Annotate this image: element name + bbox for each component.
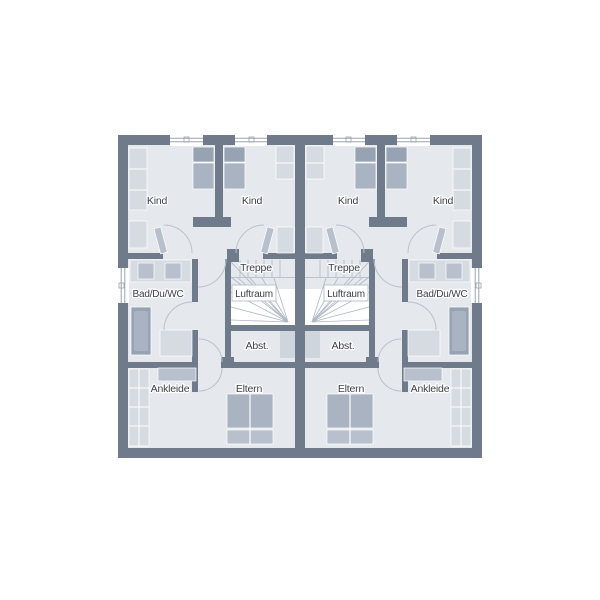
- room-label-parents-left: Eltern: [236, 383, 263, 395]
- room-label-dressing-right: Ankleide: [411, 383, 450, 395]
- room-label-bathroom-left: Bad/Du/WC: [133, 289, 184, 300]
- double-bed: [227, 394, 273, 444]
- bed: [193, 147, 214, 189]
- room-label-bathroom-right: Bad/Du/WC: [417, 289, 468, 300]
- room-label-stairs-left: Treppe: [240, 262, 272, 274]
- room-label-parents-right: Eltern: [338, 383, 365, 395]
- wardrobe: [129, 148, 147, 210]
- room-label-dressing-left: Ankleide: [151, 383, 190, 395]
- closet-shelves: [129, 369, 149, 446]
- floor-plan: Kind Kind Treppe Luftraum Bad/Du/WC Abst…: [0, 0, 600, 600]
- room-label-child-1-left: Kind: [147, 195, 168, 207]
- sink: [165, 263, 181, 279]
- desk: [129, 221, 147, 248]
- dresser: [158, 368, 196, 381]
- shaft: [280, 331, 295, 358]
- room-label-airspace-right: Luftraum: [327, 289, 365, 300]
- room-label-child-1-right: Kind: [338, 195, 359, 207]
- party-wall: [295, 135, 305, 458]
- bed: [224, 147, 245, 189]
- desk: [277, 227, 294, 253]
- room-label-child-2-right: Kind: [433, 195, 454, 207]
- window-icon: [170, 134, 203, 146]
- window-icon: [117, 268, 129, 303]
- bathtub: [131, 307, 151, 355]
- room-label-child-2-left: Kind: [242, 195, 263, 207]
- room-label-airspace-left: Luftraum: [235, 289, 273, 300]
- shower: [160, 330, 192, 356]
- sink: [138, 263, 154, 279]
- page: Kind Kind Treppe Luftraum Bad/Du/WC Abst…: [0, 0, 600, 600]
- room-label-storage-right: Abst.: [332, 340, 355, 352]
- room-label-stairs-right: Treppe: [328, 262, 360, 274]
- room-label-storage-left: Abst.: [246, 340, 269, 352]
- window-icon: [235, 134, 267, 146]
